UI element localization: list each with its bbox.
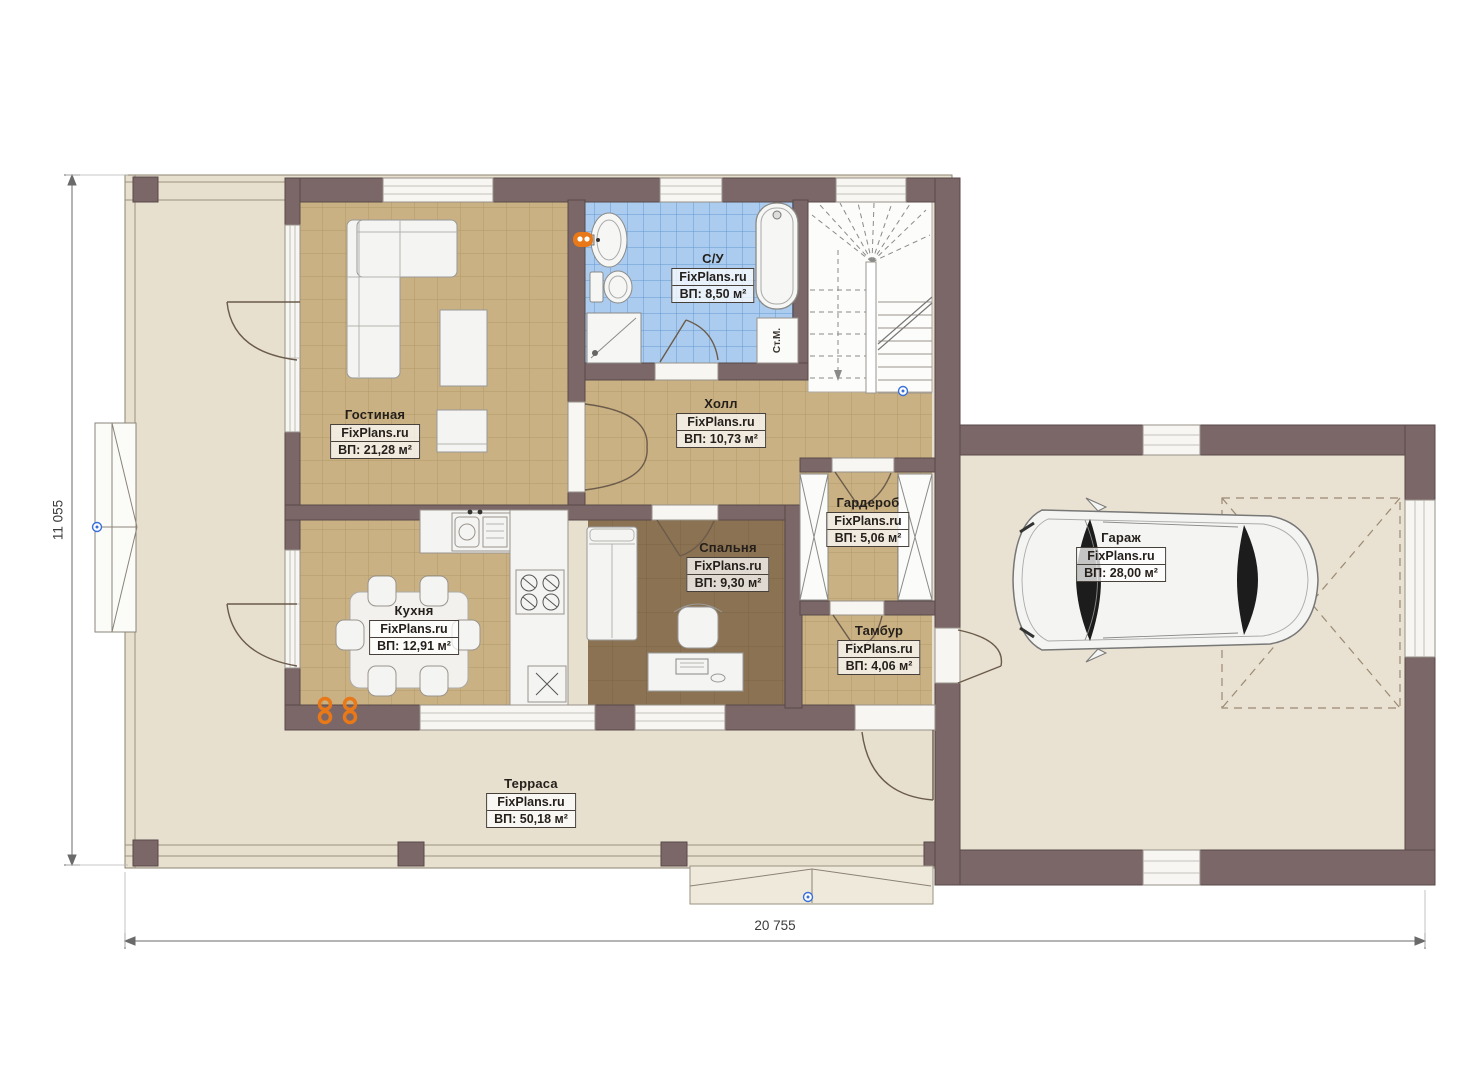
garage <box>950 425 1435 885</box>
wardrobe-unit-left <box>800 474 828 600</box>
room-info-box: FixPlans.ru ВП: 9,30 м² <box>686 557 769 592</box>
appliance-box <box>528 666 566 702</box>
area-text: ВП: 12,91 м² <box>370 638 458 654</box>
bathtub-tap <box>773 211 781 219</box>
stove <box>516 570 564 614</box>
label-tambour: Тамбур FixPlans.ru ВП: 4,06 м² <box>837 623 920 675</box>
label-living: Гостиная FixPlans.ru ВП: 21,28 м² <box>330 407 420 459</box>
desk <box>648 653 743 691</box>
area-text: ВП: 50,18 м² <box>487 811 575 827</box>
door-opening-wardrobe <box>832 458 894 472</box>
room-name: Гараж <box>1076 530 1166 545</box>
area-text: ВП: 5,06 м² <box>827 530 908 546</box>
room-name: Спальня <box>686 540 769 555</box>
label-bedroom: Спальня FixPlans.ru ВП: 9,30 м² <box>686 540 769 592</box>
floor-plan: Гостиная FixPlans.ru ВП: 21,28 м² С/У Fi… <box>0 0 1474 1080</box>
room-info-box: FixPlans.ru ВП: 5,06 м² <box>826 512 909 547</box>
door-opening-tambour-terrace <box>855 705 935 730</box>
bathtub <box>756 203 798 309</box>
door-opening-living-hall <box>568 402 585 492</box>
label-bath: С/У FixPlans.ru ВП: 8,50 м² <box>671 251 754 303</box>
room-info-box: FixPlans.ru ВП: 50,18 м² <box>486 793 576 828</box>
coffee-table <box>440 310 487 386</box>
dimension-height-label: 11 055 <box>51 500 66 540</box>
bed <box>587 527 637 640</box>
label-kitchen: Кухня FixPlans.ru ВП: 12,91 м² <box>369 603 459 655</box>
room-name: Кухня <box>369 603 459 618</box>
area-text: ВП: 28,00 м² <box>1077 565 1165 581</box>
area-text: ВП: 4,06 м² <box>838 658 919 674</box>
washing-machine-label: Ст.М. <box>757 318 798 363</box>
brand-text: FixPlans.ru <box>331 425 419 442</box>
room-info-box: FixPlans.ru ВП: 4,06 м² <box>837 640 920 675</box>
room-info-box: FixPlans.ru ВП: 8,50 м² <box>671 268 754 303</box>
room-name: С/У <box>671 251 754 266</box>
room-info-box: FixPlans.ru ВП: 21,28 м² <box>330 424 420 459</box>
room-info-box: FixPlans.ru ВП: 10,73 м² <box>676 413 766 448</box>
dimension-width-label: 20 755 <box>754 918 795 933</box>
area-text: ВП: 10,73 м² <box>677 431 765 447</box>
area-text: ВП: 8,50 м² <box>672 286 753 302</box>
door-opening-bedroom <box>652 505 718 520</box>
armchair <box>674 604 722 648</box>
wall-right <box>935 178 960 885</box>
area-text: ВП: 21,28 м² <box>331 442 419 458</box>
door-opening-tambour <box>830 601 884 615</box>
window-bath-top <box>660 178 722 202</box>
radiator-bath <box>573 232 593 247</box>
brand-text: FixPlans.ru <box>487 794 575 811</box>
toilet <box>590 271 632 303</box>
window-kitchen-bottom <box>420 705 595 730</box>
brand-text: FixPlans.ru <box>677 414 765 431</box>
brand-text: FixPlans.ru <box>838 641 919 658</box>
garage-door-opening <box>1405 500 1435 657</box>
brand-text: FixPlans.ru <box>370 621 458 638</box>
room-name: Терраса <box>486 776 576 791</box>
glazed-door-living <box>285 225 300 432</box>
label-garage: Гараж FixPlans.ru ВП: 28,00 м² <box>1076 530 1166 582</box>
window-bedroom-bottom <box>635 705 725 730</box>
garage-floor <box>955 450 1410 855</box>
door-opening-bath <box>655 363 718 380</box>
staircase <box>808 202 932 393</box>
brand-text: FixPlans.ru <box>687 558 768 575</box>
window-stairs-top <box>836 178 906 202</box>
glazed-door-kitchen <box>285 550 300 668</box>
room-name: Тамбур <box>837 623 920 638</box>
room-info-box: FixPlans.ru ВП: 12,91 м² <box>369 620 459 655</box>
room-info-box: FixPlans.ru ВП: 28,00 м² <box>1076 547 1166 582</box>
side-table <box>437 410 487 452</box>
brand-text: FixPlans.ru <box>827 513 908 530</box>
room-name: Гостиная <box>330 407 420 422</box>
label-terrace: Терраса FixPlans.ru ВП: 50,18 м² <box>486 776 576 828</box>
label-hall: Холл FixPlans.ru ВП: 10,73 м² <box>676 396 766 448</box>
room-name: Гардероб <box>826 495 909 510</box>
area-text: ВП: 9,30 м² <box>687 575 768 591</box>
window-living-top <box>383 178 493 202</box>
kitchen-sink <box>452 510 510 551</box>
shower <box>587 313 641 363</box>
brand-text: FixPlans.ru <box>1077 548 1165 565</box>
room-name: Холл <box>676 396 766 411</box>
brand-text: FixPlans.ru <box>672 269 753 286</box>
label-wardrobe: Гардероб FixPlans.ru ВП: 5,06 м² <box>826 495 909 547</box>
door-opening-garage <box>935 628 960 683</box>
